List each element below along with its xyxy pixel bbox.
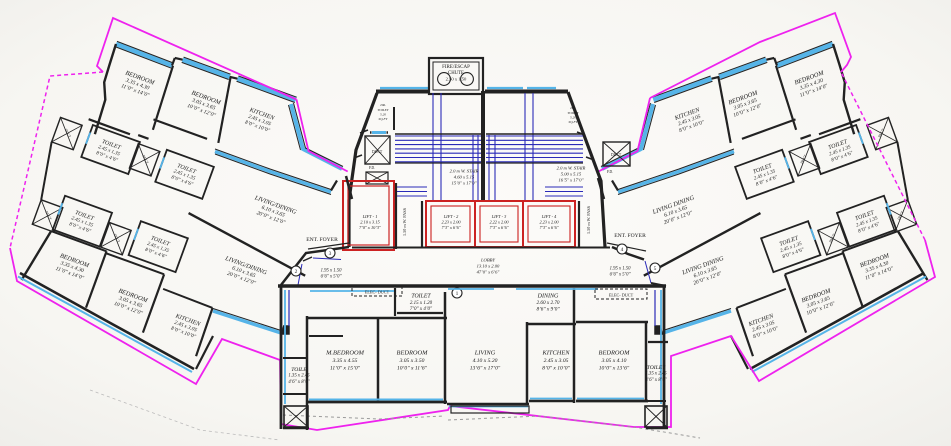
svg-text:SQ.FT: SQ.FT bbox=[379, 117, 389, 121]
svg-text:7’3" x 6’6": 7’3" x 6’6" bbox=[441, 225, 460, 230]
svg-text:7’3" x 6’6": 7’3" x 6’6" bbox=[489, 225, 508, 230]
svg-text:4.10 x 5.20: 4.10 x 5.20 bbox=[473, 358, 498, 364]
svg-text:5.20: 5.20 bbox=[570, 116, 576, 120]
svg-text:SQ.FT: SQ.FT bbox=[569, 120, 579, 124]
svg-text:2.15 x 1.20: 2.15 x 1.20 bbox=[410, 301, 433, 306]
svg-text:2.10 x 3.15: 2.10 x 3.15 bbox=[360, 220, 380, 225]
svg-text:LOBBY: LOBBY bbox=[480, 258, 495, 263]
svg-text:TOILET: TOILET bbox=[411, 294, 431, 300]
svg-text:3: 3 bbox=[329, 251, 332, 257]
svg-text:4.60 x 5.15: 4.60 x 5.15 bbox=[454, 175, 475, 180]
svg-text:2.60 x 2.70: 2.60 x 2.70 bbox=[536, 300, 559, 306]
svg-text:2.0 m W. STAIR: 2.0 m W. STAIR bbox=[450, 169, 479, 174]
svg-text:6’6" x 5’0": 6’6" x 5’0" bbox=[610, 273, 631, 278]
svg-text:DUCT: DUCT bbox=[372, 150, 383, 154]
svg-text:16’5" x 17’0": 16’5" x 17’0" bbox=[558, 178, 583, 183]
svg-text:BEDROOM: BEDROOM bbox=[599, 350, 631, 357]
svg-text:DR.: DR. bbox=[379, 103, 386, 107]
svg-text:8’0" x 10’0": 8’0" x 10’0" bbox=[542, 366, 570, 372]
svg-text:ELEC- DUCT: ELEC- DUCT bbox=[365, 290, 390, 295]
svg-text:15’0" x 17’0": 15’0" x 17’0" bbox=[451, 181, 476, 186]
svg-text:5.00 x 5.15: 5.00 x 5.15 bbox=[561, 172, 582, 177]
svg-text:LIVING: LIVING bbox=[474, 350, 496, 357]
svg-text:TOILE: TOILE bbox=[291, 367, 307, 373]
svg-text:3.05 x 3.50: 3.05 x 3.50 bbox=[399, 358, 425, 364]
svg-text:LIFT - 3: LIFT - 3 bbox=[491, 214, 507, 219]
svg-text:1.35 x 2.45: 1.35 x 2.45 bbox=[288, 374, 310, 379]
svg-text:4: 4 bbox=[621, 247, 624, 253]
svg-text:ENT. FOYER: ENT. FOYER bbox=[614, 233, 646, 239]
svg-text:2.45 x 3.05: 2.45 x 3.05 bbox=[544, 358, 569, 364]
svg-text:KITCHEN: KITCHEN bbox=[542, 350, 571, 357]
svg-text:LIFT - 2: LIFT - 2 bbox=[443, 214, 459, 219]
svg-text:DINING: DINING bbox=[537, 294, 559, 300]
svg-text:2: 2 bbox=[295, 269, 298, 275]
svg-text:8’6" x 9’0": 8’6" x 9’0" bbox=[536, 306, 560, 312]
svg-text:3.05 x 4.10: 3.05 x 4.10 bbox=[601, 358, 627, 364]
svg-text:M.BEDROOM: M.BEDROOM bbox=[325, 350, 364, 357]
svg-text:7’0" x 10’3": 7’0" x 10’3" bbox=[359, 225, 381, 230]
svg-text:4’6" x 8’0": 4’6" x 8’0" bbox=[288, 380, 310, 385]
svg-text:10’0" x 13’6": 10’0" x 13’6" bbox=[599, 366, 630, 372]
svg-text:2.22 x 2.00: 2.22 x 2.00 bbox=[489, 220, 509, 225]
svg-text:1.95 x 1.50: 1.95 x 1.50 bbox=[610, 267, 631, 272]
svg-text:LIFT - 4: LIFT - 4 bbox=[541, 214, 557, 219]
svg-text:11’0" x 15’0": 11’0" x 15’0" bbox=[330, 366, 361, 372]
svg-text:2.23 x 2.00: 2.23 x 2.00 bbox=[441, 220, 461, 225]
svg-text:DUCT: DUCT bbox=[611, 153, 622, 157]
svg-text:6’6" x 5’0": 6’6" x 5’0" bbox=[321, 275, 342, 280]
svg-text:LIFT - 1: LIFT - 1 bbox=[362, 214, 378, 219]
svg-text:CHUTE: CHUTE bbox=[448, 71, 464, 76]
svg-text:FIRE/ESCAP: FIRE/ESCAP bbox=[442, 65, 470, 70]
svg-text:13.10 x 2.00: 13.10 x 2.00 bbox=[477, 264, 500, 269]
svg-text:1.95 x 1.50: 1.95 x 1.50 bbox=[321, 269, 342, 274]
svg-text:47’0" x 6’6": 47’0" x 6’6" bbox=[477, 270, 500, 275]
svg-text:ELEC- DUCT: ELEC- DUCT bbox=[609, 293, 634, 298]
svg-text:F.D.: F.D. bbox=[369, 166, 375, 170]
svg-text:F.D.: F.D. bbox=[607, 170, 613, 174]
svg-text:7’3" x 6’6": 7’3" x 6’6" bbox=[539, 225, 558, 230]
svg-text:DR.: DR. bbox=[569, 106, 576, 110]
svg-text:13’6" x 17’0": 13’6" x 17’0" bbox=[470, 366, 501, 372]
svg-text:5: 5 bbox=[654, 266, 657, 272]
svg-text:ENT. FOYER: ENT. FOYER bbox=[306, 237, 338, 243]
svg-text:3.35 x 4.55: 3.35 x 4.55 bbox=[332, 358, 358, 364]
svg-text:BEDROOM: BEDROOM bbox=[397, 350, 429, 357]
svg-text:2.23 x 2.00: 2.23 x 2.00 bbox=[539, 220, 559, 225]
svg-text:5.20: 5.20 bbox=[380, 113, 386, 117]
svg-text:4’6" x 8’0": 4’6" x 8’0" bbox=[645, 378, 667, 383]
svg-text:TOILET: TOILET bbox=[377, 108, 389, 112]
svg-text:2.0 m W. STAIR: 2.0 m W. STAIR bbox=[557, 166, 586, 171]
svg-text:1: 1 bbox=[456, 291, 459, 297]
svg-text:1.35 x 2.45: 1.35 x 2.45 bbox=[645, 372, 667, 377]
svg-text:TOILET: TOILET bbox=[567, 111, 579, 115]
svg-text:1.50 m W. PASS: 1.50 m W. PASS bbox=[586, 205, 591, 234]
svg-text:10’0" x 11’6": 10’0" x 11’6" bbox=[397, 366, 428, 372]
svg-text:TOILET: TOILET bbox=[647, 365, 666, 371]
svg-text:7’0" x 4’0": 7’0" x 4’0" bbox=[410, 307, 433, 312]
svg-text:1.50 m W. PASS: 1.50 m W. PASS bbox=[402, 207, 407, 236]
svg-text:2.50 x 1.50: 2.50 x 1.50 bbox=[446, 77, 467, 82]
